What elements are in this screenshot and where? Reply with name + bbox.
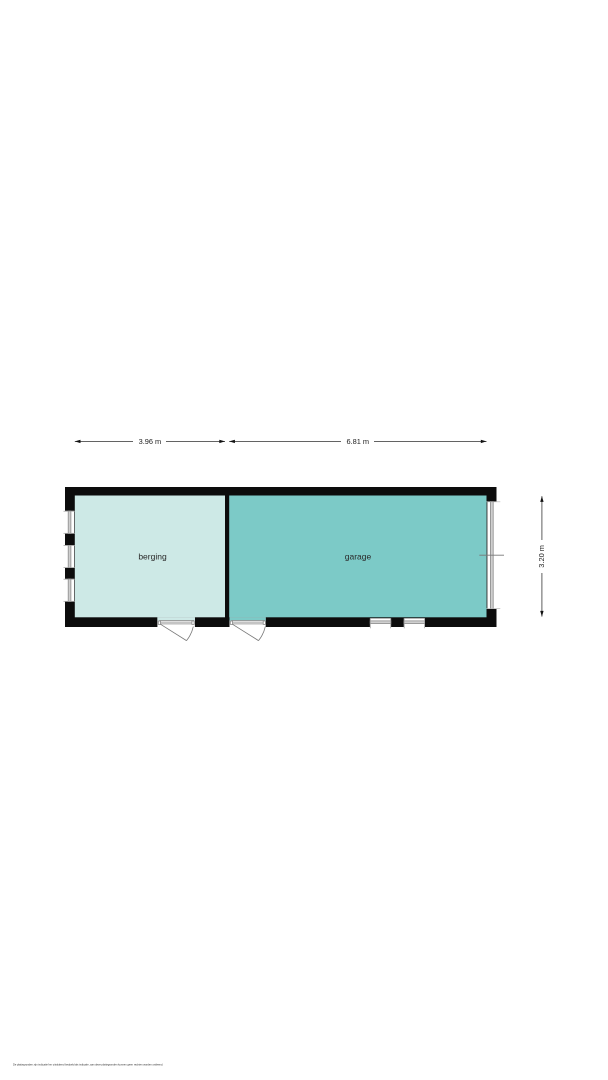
svg-text:berging: berging bbox=[138, 552, 167, 562]
svg-text:3.20 m: 3.20 m bbox=[537, 545, 546, 568]
svg-text:6.81 m: 6.81 m bbox=[346, 437, 369, 446]
svg-text:De plattegronden zijn indicati: De plattegronden zijn indicatief en uits… bbox=[13, 1063, 163, 1067]
svg-text:garage: garage bbox=[345, 552, 372, 562]
svg-text:3.96 m: 3.96 m bbox=[139, 437, 162, 446]
